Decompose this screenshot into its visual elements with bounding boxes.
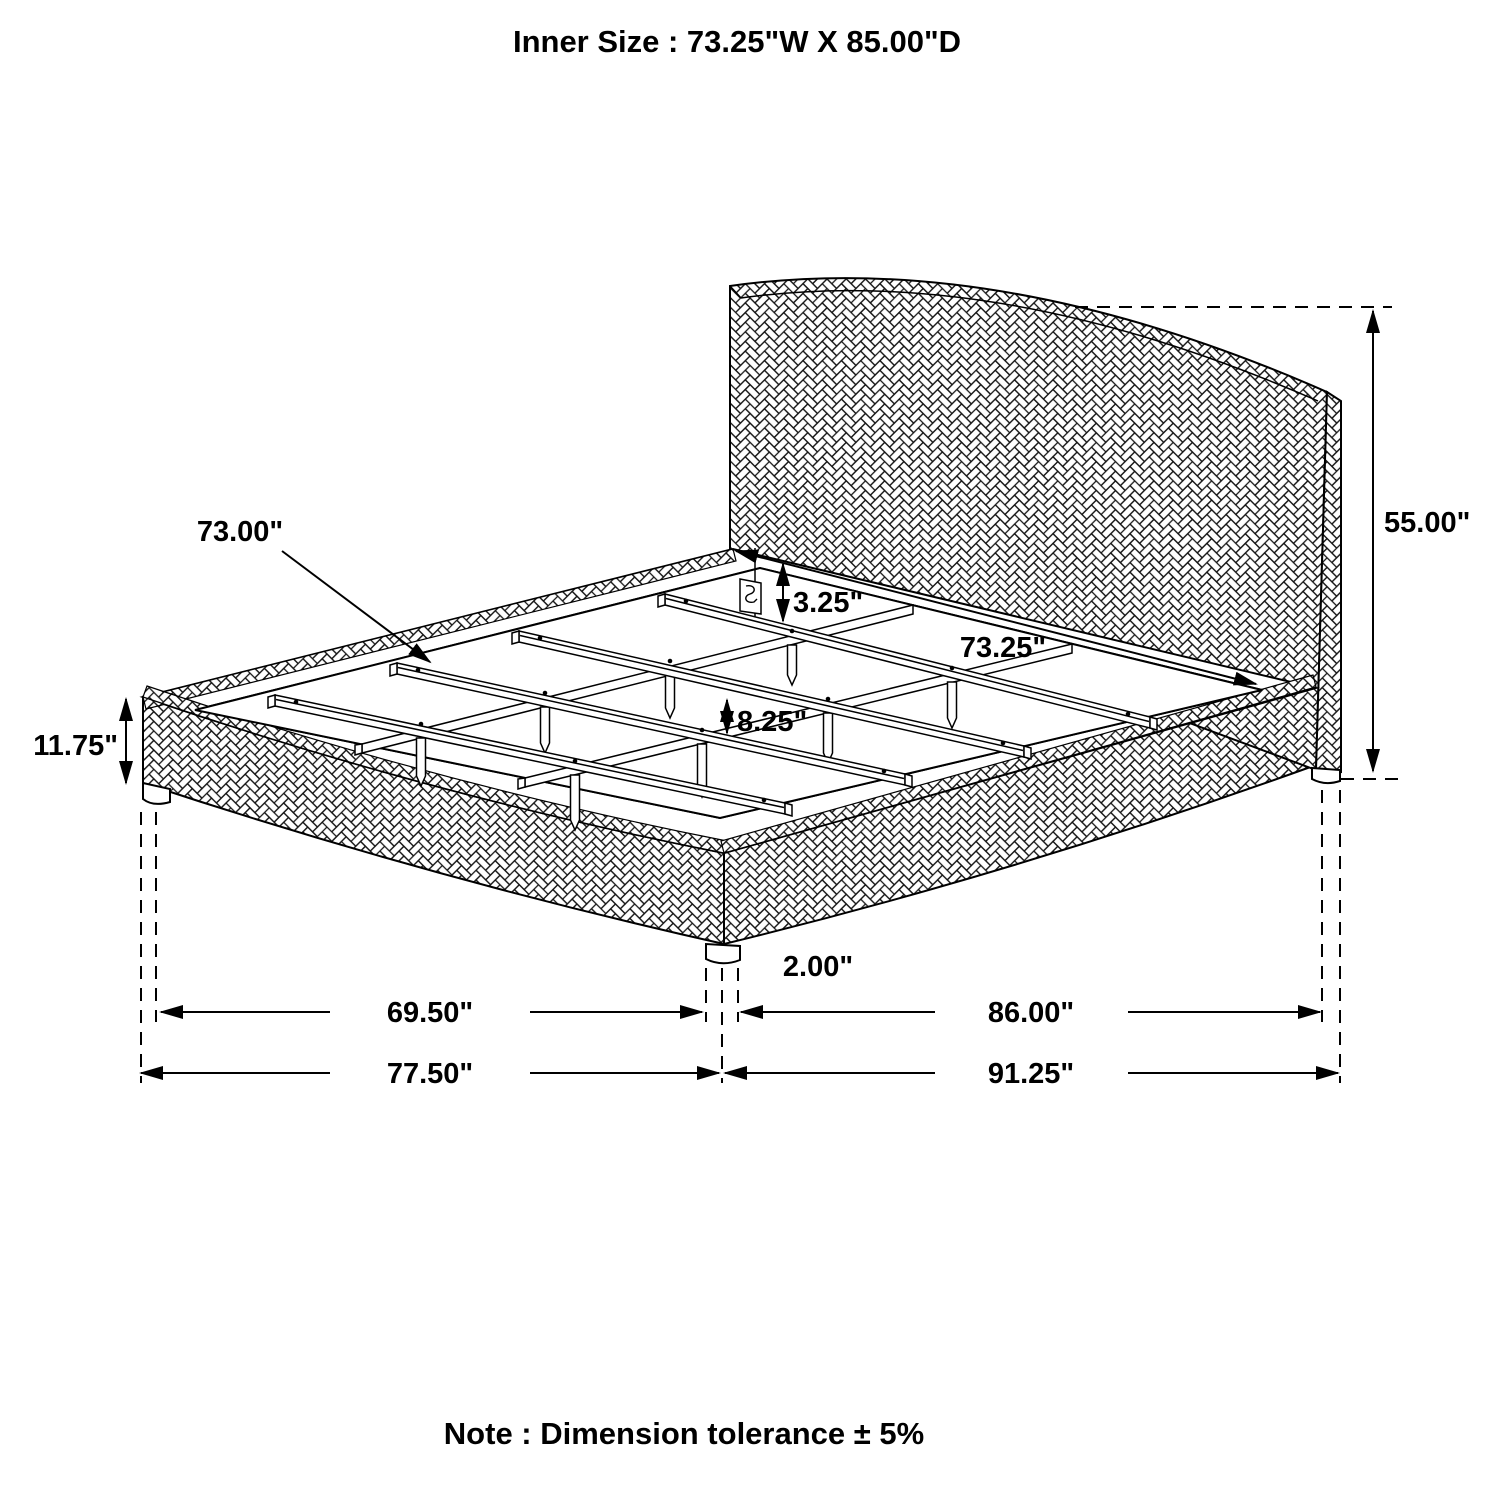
rail-hook-bracket	[740, 579, 761, 614]
support-leg	[948, 682, 957, 728]
corner-foot-front	[706, 944, 740, 963]
dim-label-inner-width: 73.25"	[960, 632, 1046, 664]
bed-drawing	[143, 278, 1341, 963]
support-leg	[666, 675, 675, 718]
dim-label-width-between-legs: 69.50"	[387, 997, 473, 1029]
dim-label-foot-leg-height: 2.00"	[783, 951, 853, 983]
support-leg	[788, 645, 797, 685]
dim-label-overall-depth: 91.25"	[988, 1058, 1074, 1090]
support-leg	[571, 775, 580, 830]
support-leg	[541, 707, 550, 753]
dim-label-headboard-height: 55.00"	[1384, 507, 1470, 539]
tolerance-note: Note : Dimension tolerance ± 5%	[444, 1416, 924, 1451]
support-leg	[824, 713, 833, 763]
dim-label-slat-spacing: 8.25"	[737, 706, 807, 738]
dim-label-ledge-recess: 3.25"	[793, 587, 863, 619]
bed-dimension-diagram-page: Inner Size : 73.25"W X 85.00"D Note : Di…	[0, 0, 1500, 1500]
bed-dimension-diagram: Inner Size : 73.25"W X 85.00"D Note : Di…	[0, 0, 1500, 1500]
dim-label-slat-length: 73.00"	[197, 516, 283, 548]
dim-label-rail-height: 11.75"	[33, 730, 118, 762]
corner-foot-rear-right	[1312, 768, 1340, 783]
dim-label-overall-width: 77.50"	[387, 1058, 473, 1090]
page-title: Inner Size : 73.25"W X 85.00"D	[513, 24, 961, 59]
dim-label-depth-between-legs: 86.00"	[988, 997, 1074, 1029]
support-leg	[417, 738, 426, 786]
